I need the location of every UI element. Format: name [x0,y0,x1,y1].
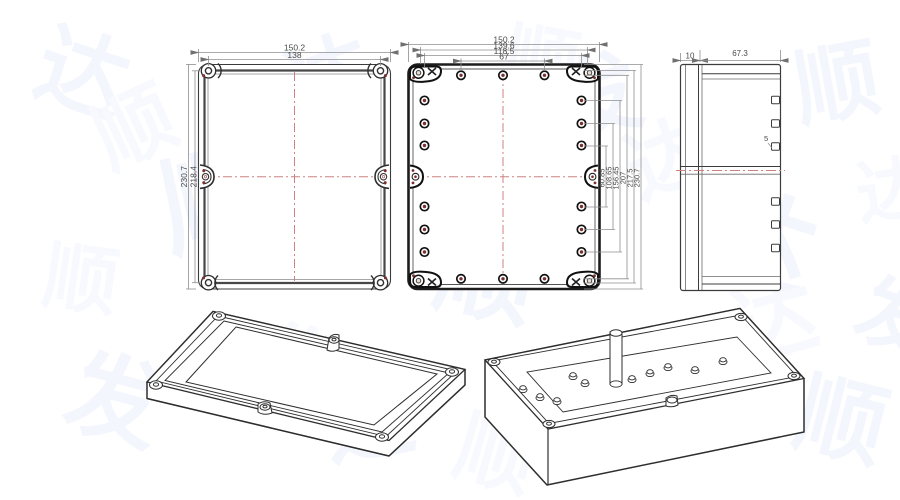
svg-text:5: 5 [764,134,768,143]
svg-text:230.7: 230.7 [633,169,642,188]
svg-text:10: 10 [686,52,695,61]
svg-text:230.7: 230.7 [179,166,189,188]
svg-text:67: 67 [499,52,509,62]
svg-text:顺: 顺 [38,233,124,327]
svg-text:218.4: 218.4 [189,166,199,188]
svg-text:顺: 顺 [787,30,887,138]
svg-text:67.3: 67.3 [732,49,748,58]
svg-text:138: 138 [287,50,301,60]
